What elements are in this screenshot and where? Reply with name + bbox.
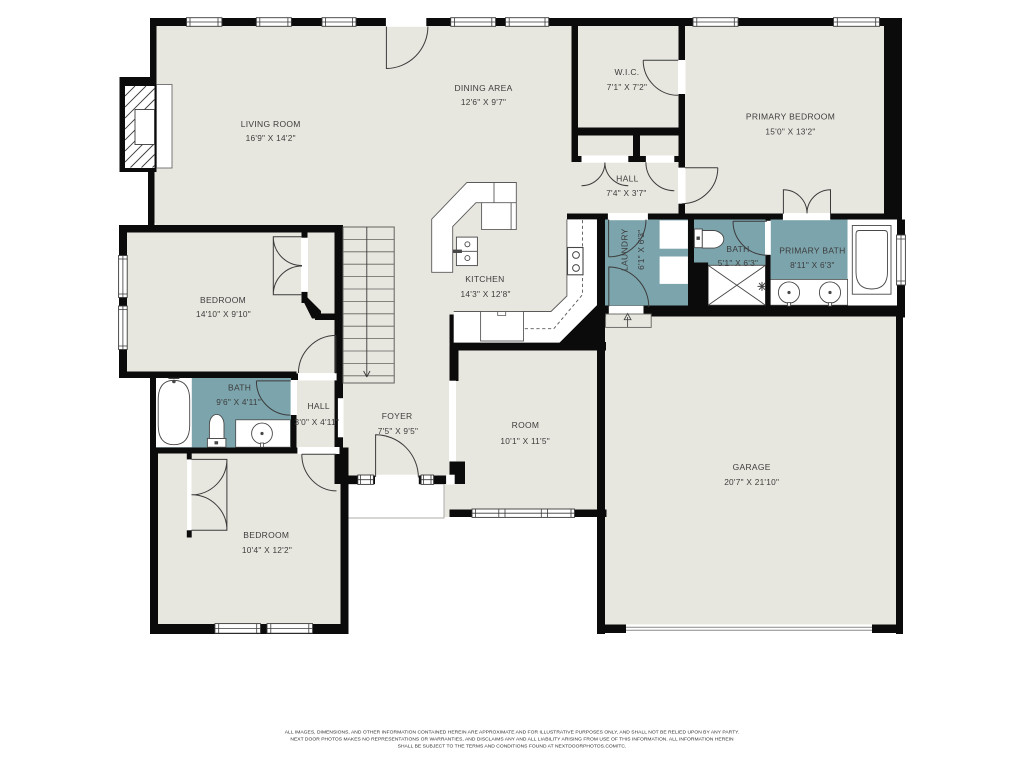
svg-text:10'1" X 11'5": 10'1" X 11'5": [500, 436, 550, 446]
svg-text:9'6" X 4'11": 9'6" X 4'11": [216, 397, 261, 407]
svg-text:SHALL BE SUBJECT TO THE TERMS: SHALL BE SUBJECT TO THE TERMS AND CONDIT…: [398, 744, 627, 750]
svg-text:15'0" X 13'2": 15'0" X 13'2": [765, 127, 815, 137]
svg-text:14'10" X 9'10": 14'10" X 9'10": [196, 309, 251, 319]
svg-text:10'4" X 12'2": 10'4" X 12'2": [242, 545, 292, 555]
svg-text:14'3" X 12'8": 14'3" X 12'8": [461, 289, 511, 299]
svg-text:GARAGE: GARAGE: [733, 462, 771, 472]
svg-text:FOYER: FOYER: [382, 411, 413, 421]
svg-text:BATH: BATH: [726, 244, 749, 254]
svg-text:NEXT DOOR PHOTOS MAKES NO REPR: NEXT DOOR PHOTOS MAKES NO REPRESENTATION…: [290, 737, 734, 743]
svg-text:16'9" X 14'2": 16'9" X 14'2": [246, 133, 296, 143]
svg-text:7'5" X 9'5": 7'5" X 9'5": [378, 426, 418, 436]
svg-text:7'4" X 3'7": 7'4" X 3'7": [606, 188, 646, 198]
svg-text:PRIMARY BEDROOM: PRIMARY BEDROOM: [746, 112, 835, 122]
svg-text:LIVING ROOM: LIVING ROOM: [241, 119, 301, 129]
svg-text:HALL: HALL: [307, 401, 329, 411]
svg-text:PRIMARY BATH: PRIMARY BATH: [779, 246, 845, 256]
svg-text:6'1" X 6'3": 6'1" X 6'3": [636, 229, 646, 269]
svg-text:8'11" X 6'3": 8'11" X 6'3": [790, 260, 835, 270]
svg-text:3'0" X 4'11": 3'0" X 4'11": [294, 417, 339, 427]
svg-text:BEDROOM: BEDROOM: [200, 295, 246, 305]
svg-text:BATH: BATH: [228, 383, 251, 393]
svg-text:W.I.C.: W.I.C.: [615, 67, 640, 77]
svg-text:5'1" X 6'3": 5'1" X 6'3": [718, 258, 758, 268]
svg-text:DINING AREA: DINING AREA: [454, 83, 512, 93]
svg-text:HALL: HALL: [616, 174, 638, 184]
svg-text:ROOM: ROOM: [512, 420, 540, 430]
svg-text:7'1" X 7'2": 7'1" X 7'2": [607, 82, 647, 92]
svg-text:20'7" X 21'10": 20'7" X 21'10": [724, 477, 779, 487]
svg-text:12'6" X 9'7": 12'6" X 9'7": [461, 97, 506, 107]
svg-text:ALL IMAGES, DIMENSIONS, AND OT: ALL IMAGES, DIMENSIONS, AND OTHER INFORM…: [285, 730, 740, 736]
svg-text:BEDROOM: BEDROOM: [243, 530, 289, 540]
svg-text:KITCHEN: KITCHEN: [465, 274, 504, 284]
svg-text:LAUNDRY: LAUNDRY: [620, 228, 630, 271]
